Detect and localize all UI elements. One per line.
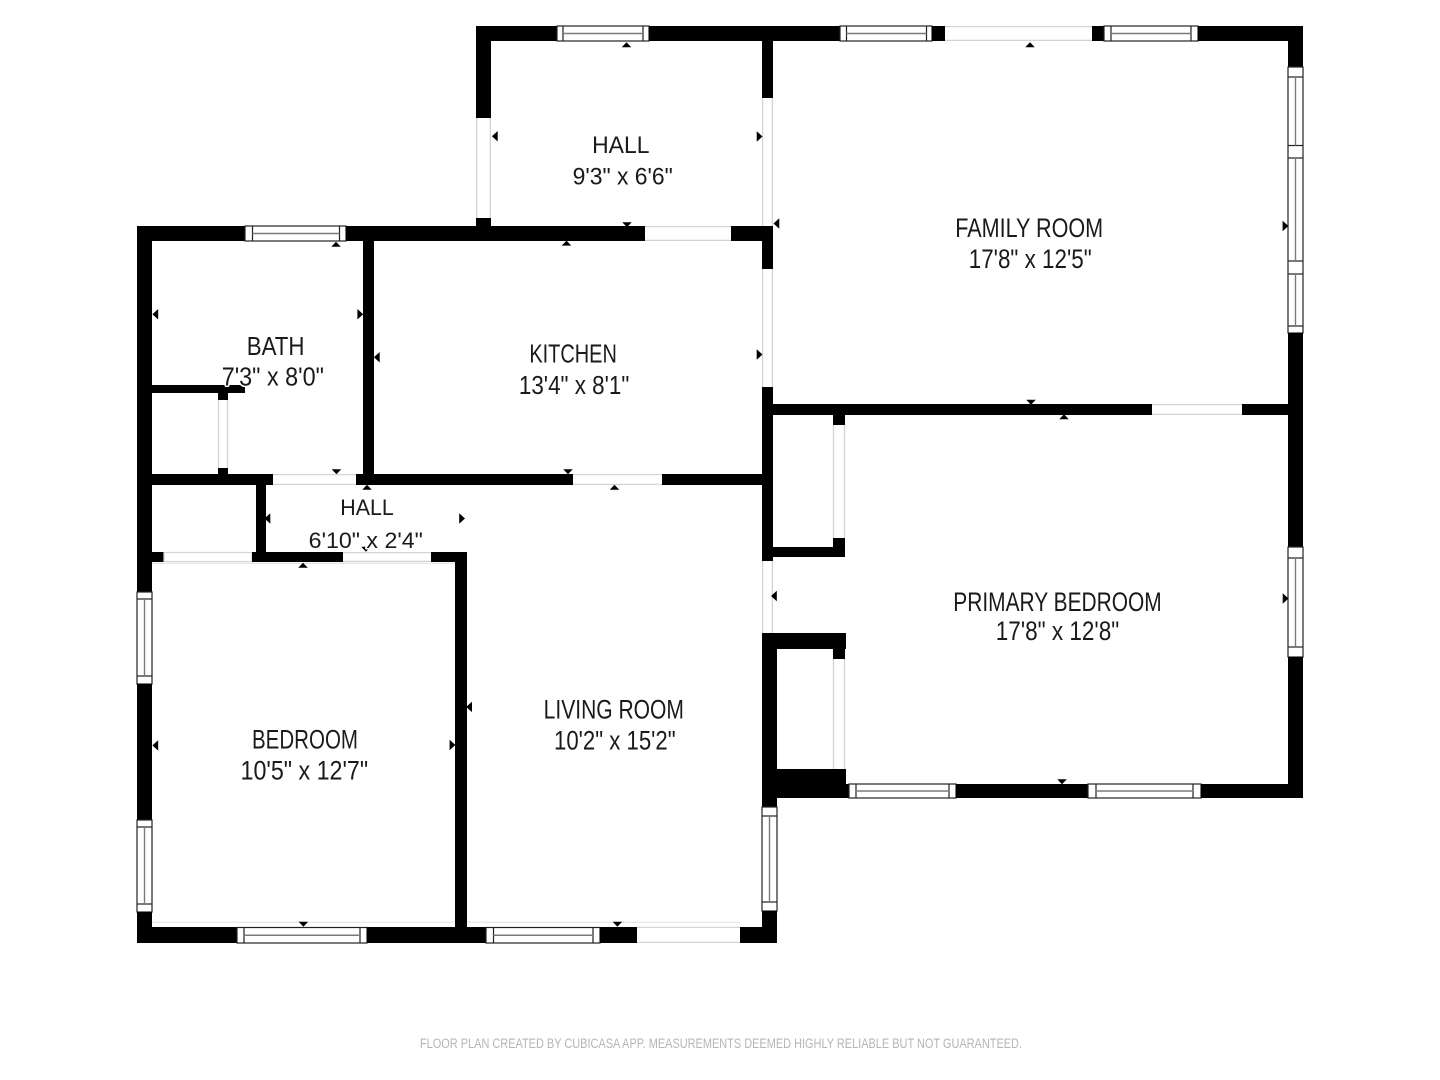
svg-text:LIVING ROOM: LIVING ROOM <box>544 695 684 725</box>
svg-text:HALL: HALL <box>592 132 649 159</box>
svg-text:17'8" x 12'8": 17'8" x 12'8" <box>996 616 1119 646</box>
svg-text:HALL: HALL <box>340 495 394 520</box>
svg-text:FAMILY ROOM: FAMILY ROOM <box>955 213 1103 243</box>
svg-text:KITCHEN: KITCHEN <box>529 341 617 369</box>
svg-text:13'4" x 8'1": 13'4" x 8'1" <box>519 372 629 400</box>
svg-text:BEDROOM: BEDROOM <box>252 724 358 754</box>
svg-text:17'8" x 12'5": 17'8" x 12'5" <box>969 244 1092 274</box>
svg-text:7'3" x 8'0": 7'3" x 8'0" <box>222 364 324 392</box>
svg-text:10'5" x 12'7": 10'5" x 12'7" <box>241 756 369 786</box>
svg-text:FLOOR PLAN CREATED BY CUBICASA: FLOOR PLAN CREATED BY CUBICASA APP. MEAS… <box>420 1036 1022 1051</box>
svg-text:9'3" x 6'6": 9'3" x 6'6" <box>573 163 673 190</box>
svg-text:PRIMARY BEDROOM: PRIMARY BEDROOM <box>953 587 1161 617</box>
svg-text:10'2" x 15'2": 10'2" x 15'2" <box>554 726 676 756</box>
svg-text:BATH: BATH <box>247 333 305 361</box>
svg-text:6'10" x 2'4": 6'10" x 2'4" <box>309 528 423 553</box>
